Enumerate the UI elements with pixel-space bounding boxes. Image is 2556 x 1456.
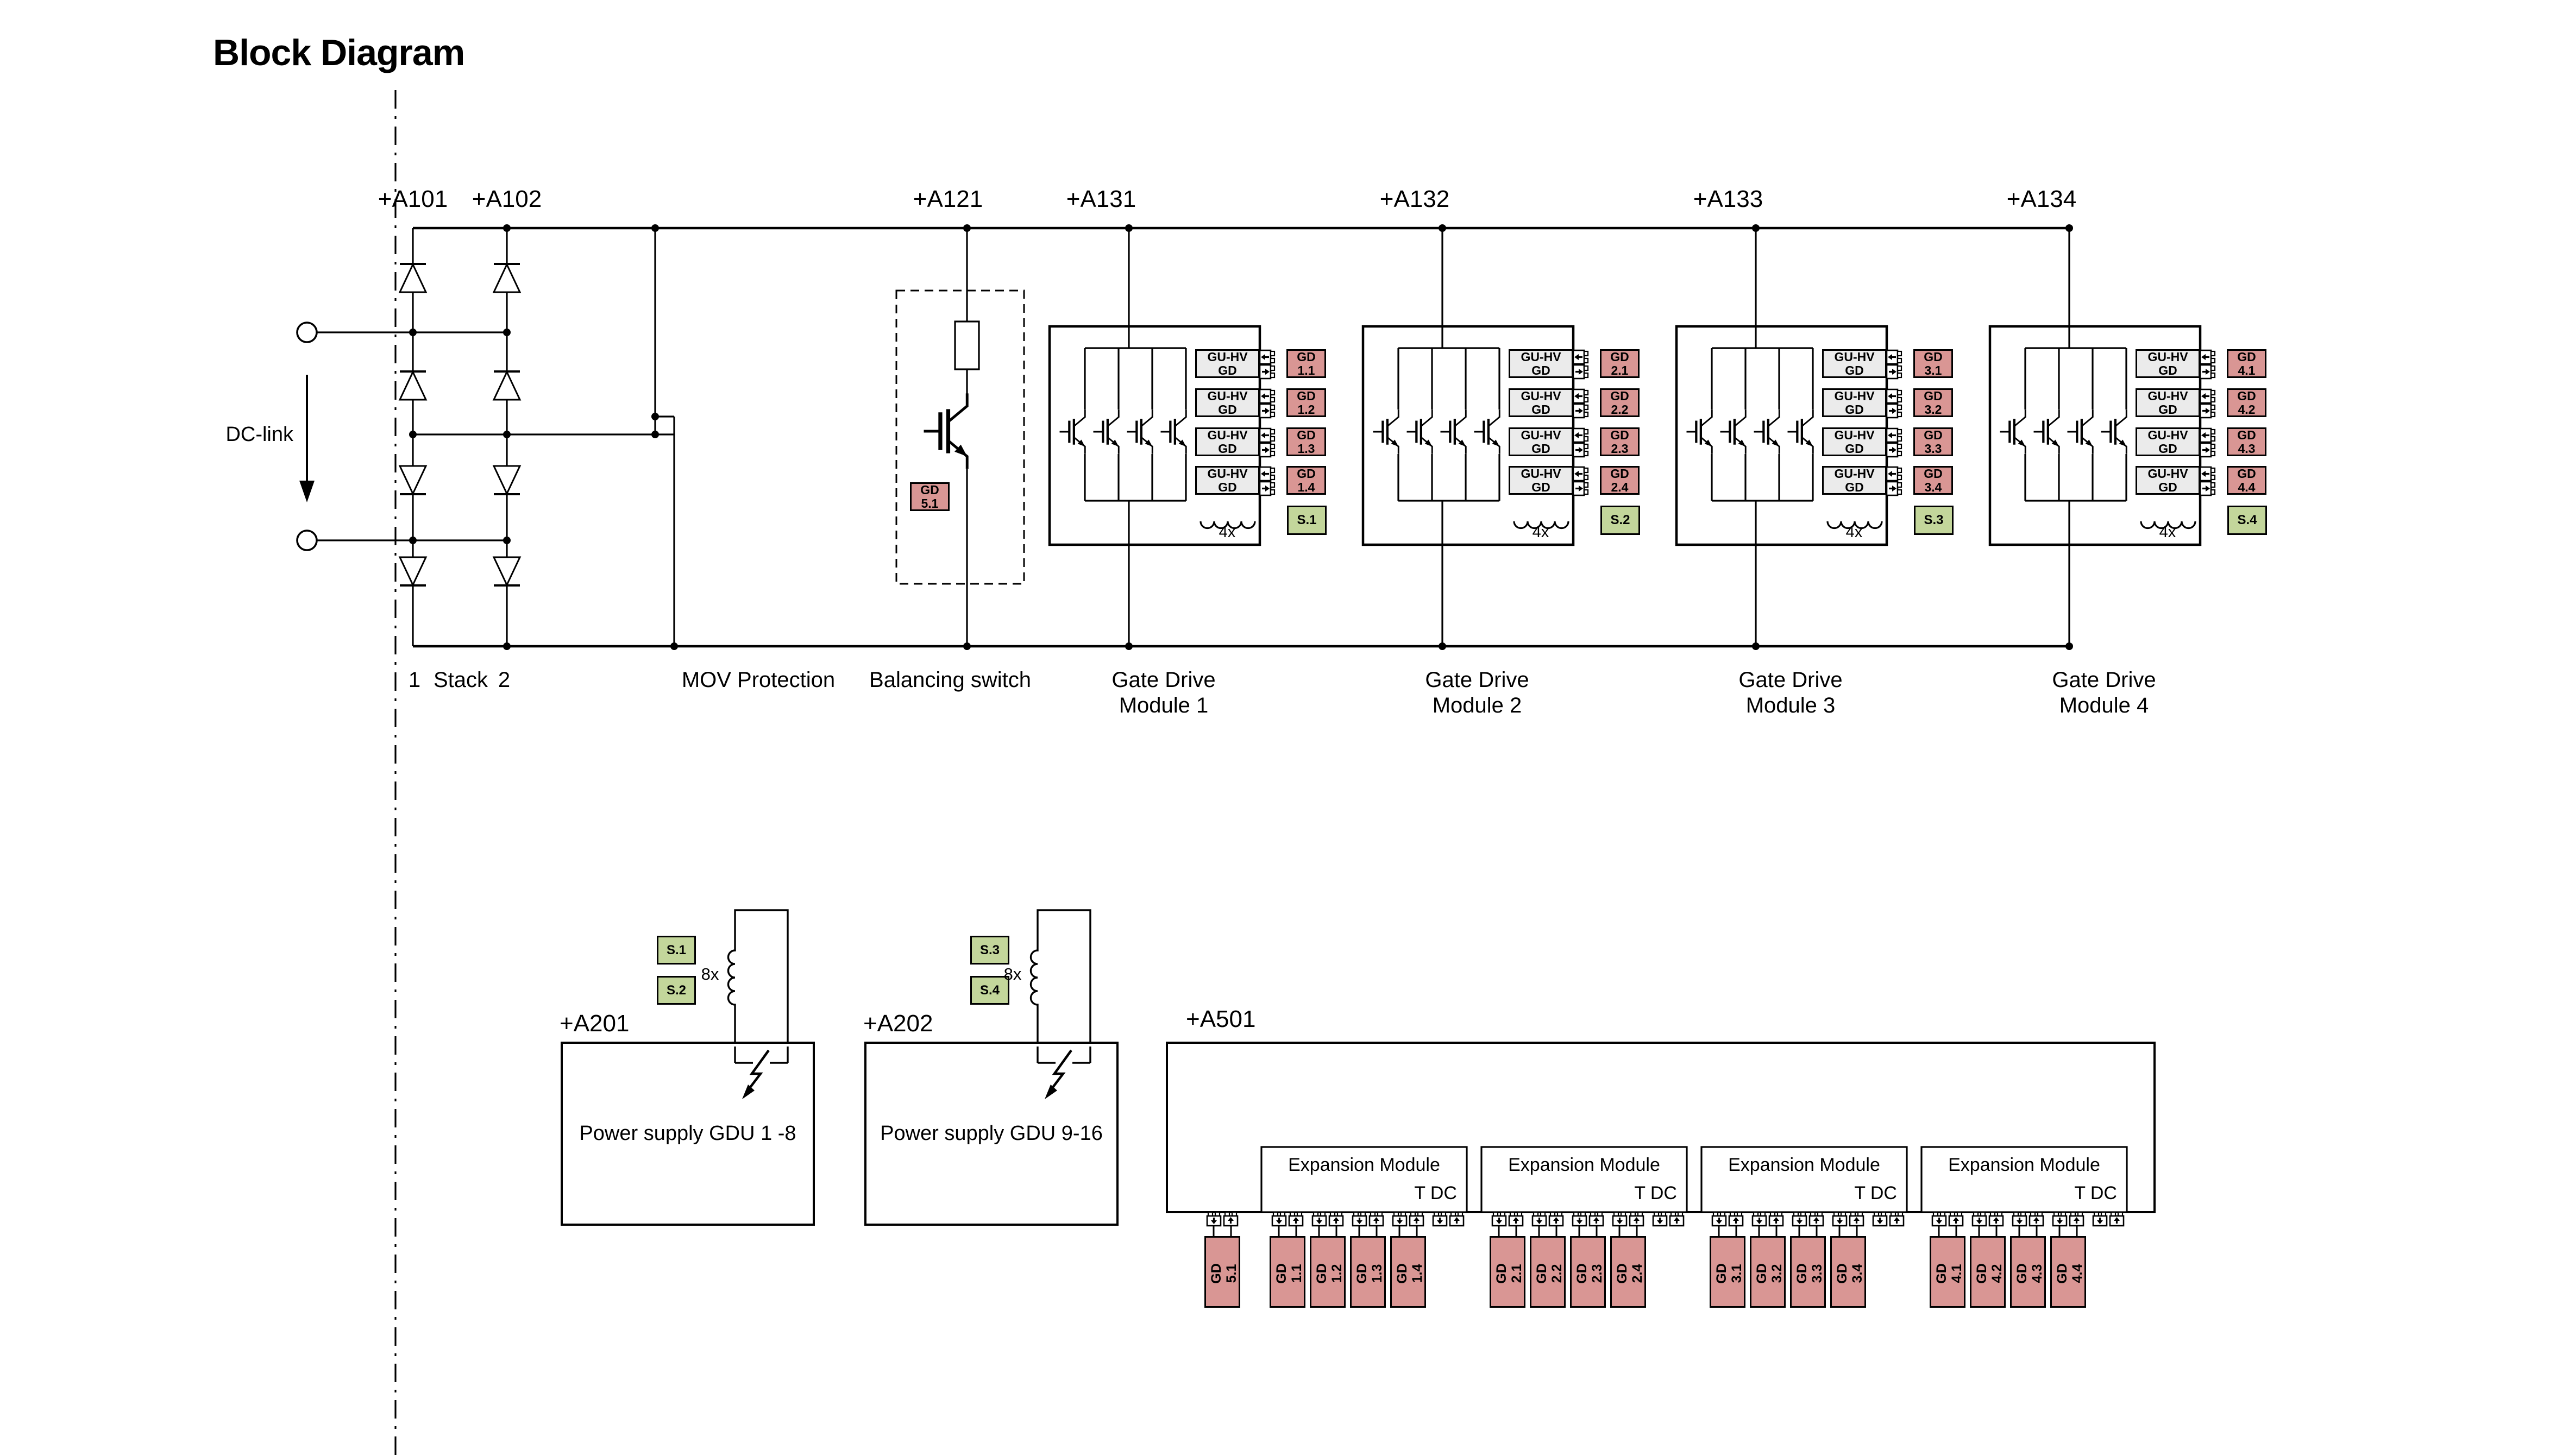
a501-ref: +A501 (1186, 1006, 1255, 1033)
gd-ref-box: GD3.3 (1913, 427, 1953, 456)
gu-hv-gd-box: GU-HVGD (1195, 466, 1260, 495)
gd-ref-box: GD3.4 (1913, 466, 1953, 495)
s-ref-box: S.2 (1600, 506, 1640, 535)
resistor-icon (955, 322, 979, 369)
mov-crossover-wiring (655, 228, 674, 646)
gu-hv-gd-box: GU-HVGD (1822, 388, 1887, 417)
gd-ref-box-vertical: GD2.4 (1610, 1236, 1646, 1308)
s-ref-box: S.2 (657, 976, 696, 1005)
module-ref: +A134 (2004, 186, 2080, 213)
gu-hv-gd-box: GU-HVGD (1509, 466, 1573, 495)
gu-hv-gd-box: GU-HVGD (1195, 349, 1260, 378)
module-caption: Module 3 (1682, 694, 1899, 718)
s-ref-box: S.3 (970, 936, 1009, 965)
gu-hv-gd-box: GU-HVGD (2136, 349, 2200, 378)
ps2-label: Power supply GDU 9-16 (865, 1043, 1117, 1225)
gu-hv-gd-box: GU-HVGD (1509, 427, 1573, 456)
dc-terminal-top (297, 323, 317, 342)
module-caption: Gate Drive (1995, 668, 2213, 692)
tdc-label: T DC (1481, 1183, 1677, 1204)
gd-ref-box: GD1.3 (1286, 427, 1326, 456)
module-ref: +A133 (1690, 186, 1766, 213)
stack-ref-a101: +A101 (375, 186, 451, 213)
gd-ref-box: GD4.2 (2227, 388, 2266, 417)
gd-ref-box: GD3.2 (1913, 388, 1953, 417)
gd-ref-box-vertical: GD3.3 (1790, 1236, 1826, 1308)
coil-count-label: 8x (994, 965, 1032, 984)
module-ref: +A131 (1063, 186, 1139, 213)
gu-hv-gd-box: GU-HVGD (1509, 388, 1573, 417)
ps1-label: Power supply GDU 1 -8 (562, 1043, 814, 1225)
module-caption: Gate Drive (1055, 668, 1272, 692)
s-ref-box: S.3 (1914, 506, 1954, 535)
gd-ref-box-vertical: GD1.4 (1390, 1236, 1426, 1308)
stack-caption: Stack (423, 668, 499, 692)
s-ref-box: S.4 (2227, 506, 2267, 535)
gd-ref-box: GD4.4 (2227, 466, 2266, 495)
gu-hv-gd-box: GU-HVGD (1822, 427, 1887, 456)
gu-hv-gd-box: GU-HVGD (2136, 388, 2200, 417)
inductor-count-label: 4x (1205, 524, 1249, 541)
module-caption: Module 4 (1995, 694, 2213, 718)
inductor-count-label: 4x (2146, 524, 2189, 541)
balancing-gd-ref-box: GD 5.1 (910, 482, 950, 511)
gu-hv-gd-box: GU-HVGD (1822, 349, 1887, 378)
gd-ref-box: GD2.4 (1600, 466, 1640, 495)
ps2-ref: +A202 (863, 1010, 933, 1037)
gu-hv-gd-box: GU-HVGD (2136, 466, 2200, 495)
gd-ref-box: GD2.2 (1600, 388, 1640, 417)
gd-ref-box-vertical: GD1.2 (1310, 1236, 1346, 1308)
gd-ref-box-vertical: GD3.4 (1830, 1236, 1866, 1308)
module-ref: +A132 (1377, 186, 1453, 213)
gd-ref-box-vertical: GD5.1 (1204, 1236, 1240, 1308)
s-ref-box: S.1 (657, 936, 696, 965)
module-caption: Gate Drive (1682, 668, 1899, 692)
gd-ref-box: GD4.1 (2227, 349, 2266, 378)
block-diagram-page: Block Diagram DC-link +A101 +A102 1 Stac… (0, 0, 2556, 1456)
tdc-label: T DC (1921, 1183, 2117, 1204)
dc-link-label: DC-link (206, 423, 293, 446)
mov-protection-label: MOV Protection (677, 668, 840, 692)
gd-ref-box-vertical: GD2.2 (1530, 1236, 1566, 1308)
gd-ref-box-vertical: GD2.3 (1570, 1236, 1606, 1308)
gd-ref-box: GD1.2 (1286, 388, 1326, 417)
gd-ref-box: GD2.1 (1600, 349, 1640, 378)
balancing-switch-label: Balancing switch (869, 668, 1032, 692)
gd-ref-box: GD2.3 (1600, 427, 1640, 456)
module-caption: Module 2 (1368, 694, 1586, 718)
expansion-module-title: Expansion Module (1701, 1155, 1907, 1176)
gd-ref-box-vertical: GD1.3 (1350, 1236, 1386, 1308)
ps1-ref: +A201 (560, 1010, 629, 1037)
tdc-label: T DC (1261, 1183, 1457, 1204)
gd-ref-box: GD1.4 (1286, 466, 1326, 495)
coil-count-label: 8x (691, 965, 729, 984)
expansion-module-title: Expansion Module (1481, 1155, 1687, 1176)
page-title: Block Diagram (213, 31, 464, 74)
tdc-label: T DC (1701, 1183, 1897, 1204)
gu-hv-gd-box: GU-HVGD (1195, 427, 1260, 456)
gd-ref-box: GD1.1 (1286, 349, 1326, 378)
gd-ref-box: GD3.1 (1913, 349, 1953, 378)
s-ref-box: S.1 (1287, 506, 1327, 535)
diode-stack (400, 228, 674, 646)
balancing-switch-circuit (896, 228, 1024, 646)
gd-ref-box-vertical: GD1.1 (1270, 1236, 1305, 1308)
gu-hv-gd-box: GU-HVGD (1822, 466, 1887, 495)
gd-ref-box-vertical: GD4.1 (1930, 1236, 1965, 1308)
dc-terminal-bottom (297, 531, 317, 550)
inductor-count-label: 4x (1832, 524, 1876, 541)
gd-ref-box-vertical: GD4.2 (1970, 1236, 2006, 1308)
gd-ref-box-vertical: GD4.3 (2010, 1236, 2046, 1308)
gu-hv-gd-box: GU-HVGD (1195, 388, 1260, 417)
stack-ref-a102: +A102 (469, 186, 545, 213)
gd-ref-box-vertical: GD3.2 (1750, 1236, 1786, 1308)
gu-hv-gd-box: GU-HVGD (1509, 349, 1573, 378)
module-caption: Gate Drive (1368, 668, 1586, 692)
dc-flow-arrow (299, 481, 315, 502)
expansion-module-title: Expansion Module (1921, 1155, 2127, 1176)
gd-ref-box-vertical: GD4.4 (2050, 1236, 2086, 1308)
expansion-module-title: Expansion Module (1261, 1155, 1467, 1176)
stack-caption-2: 2 (488, 668, 520, 692)
gu-hv-gd-box: GU-HVGD (2136, 427, 2200, 456)
inductor-count-label: 4x (1519, 524, 1562, 541)
gd-ref-box: GD4.3 (2227, 427, 2266, 456)
gd-ref-box-vertical: GD3.1 (1710, 1236, 1745, 1308)
dc-link-symbols (297, 323, 507, 550)
balancing-ref-a121: +A121 (902, 186, 994, 213)
gd-ref-box-vertical: GD2.1 (1490, 1236, 1525, 1308)
module-caption: Module 1 (1055, 694, 1272, 718)
